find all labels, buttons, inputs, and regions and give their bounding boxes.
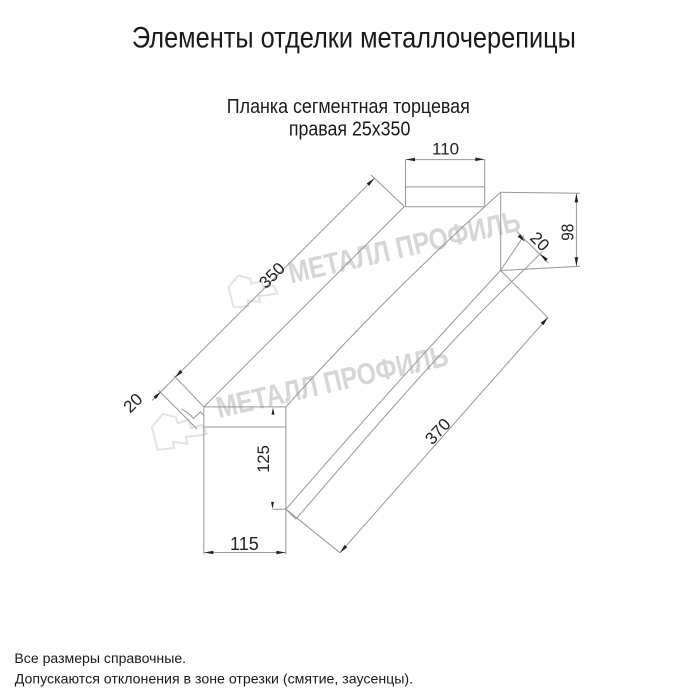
svg-text:правая 25x350: правая 25x350 xyxy=(289,118,411,141)
svg-text:98: 98 xyxy=(558,224,578,241)
svg-text:Планка сегментная торцевая: Планка сегментная торцевая xyxy=(227,95,470,118)
svg-text:350: 350 xyxy=(255,259,288,292)
svg-text:115: 115 xyxy=(230,534,259,554)
svg-text:Все размеры справочные.: Все размеры справочные. xyxy=(14,650,186,666)
svg-text:20: 20 xyxy=(120,390,147,417)
svg-text:Элементы отделки металлочерепи: Элементы отделки металлочерепицы xyxy=(132,21,576,54)
svg-text:110: 110 xyxy=(432,139,459,158)
svg-text:20: 20 xyxy=(526,228,553,255)
svg-text:Допускаются отклонения в зоне: Допускаются отклонения в зоне отрезки (с… xyxy=(15,671,413,687)
svg-text:125: 125 xyxy=(255,445,273,473)
svg-text:370: 370 xyxy=(421,415,454,449)
svg-text:МЕТАЛЛ ПРОФИЛЬ: МЕТАЛЛ ПРОФИЛЬ xyxy=(285,205,523,290)
